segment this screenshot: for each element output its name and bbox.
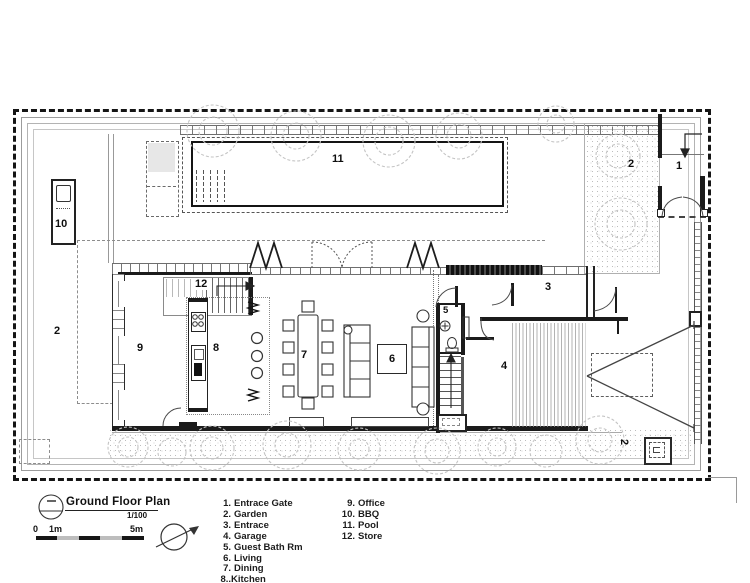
folding-doors-icon: [250, 243, 439, 268]
dining-set: [283, 301, 333, 409]
legend-item: 5.Guest Bath Rm: [216, 543, 303, 554]
bath-fixtures: [440, 317, 469, 352]
french-doors-icon: [312, 242, 372, 268]
room-label-store: 12: [194, 278, 208, 290]
scale-label-5m: 5m: [130, 524, 143, 534]
room-label-garden-left: 2: [54, 325, 60, 337]
legend-item: 4.Garage: [216, 532, 303, 543]
room-label-pool: 11: [332, 153, 344, 165]
gate-swing-lines: [587, 321, 694, 432]
kitchen-fixtures: [193, 315, 263, 379]
room-label-garden-right: 2: [628, 158, 634, 170]
room-label-kitchen: 8: [213, 342, 219, 354]
sofas: [344, 310, 434, 415]
room-label-entrance-gate: 1: [676, 160, 682, 172]
room-label-dining: 7: [301, 349, 307, 361]
room-label-entrance: 3: [545, 281, 551, 293]
legend-column-1: 1.Entrace Gate 2.Garden 3.Entrace 4.Gara…: [216, 499, 303, 583]
room-label-bbq: 10: [55, 218, 67, 230]
room-label-garage: 4: [501, 360, 507, 372]
scale-label-0: 0: [33, 524, 38, 534]
room-label-garden-bottom: 2: [618, 439, 630, 445]
title-bubble-icon: [39, 495, 63, 519]
trees: [108, 105, 647, 474]
legend-item: 12.Store: [336, 532, 385, 543]
legend-column-2: 9.Office 10.BBQ 11.Pool 12.Store: [336, 499, 385, 543]
scale-label-1m: 1m: [49, 524, 62, 534]
floor-plan-drawing: 6: [0, 0, 750, 583]
entry-arrow-icon: [681, 134, 702, 157]
drawing-scale: 1/100: [127, 511, 147, 520]
room-label-guest-bath: 5: [443, 305, 448, 317]
legend-item: 8..Kitchen: [216, 575, 303, 583]
room-label-office: 9: [137, 342, 143, 354]
scale-bar: [36, 536, 144, 540]
drawing-title: Ground Floor Plan: [66, 496, 170, 508]
north-arrow-icon: [156, 524, 199, 550]
